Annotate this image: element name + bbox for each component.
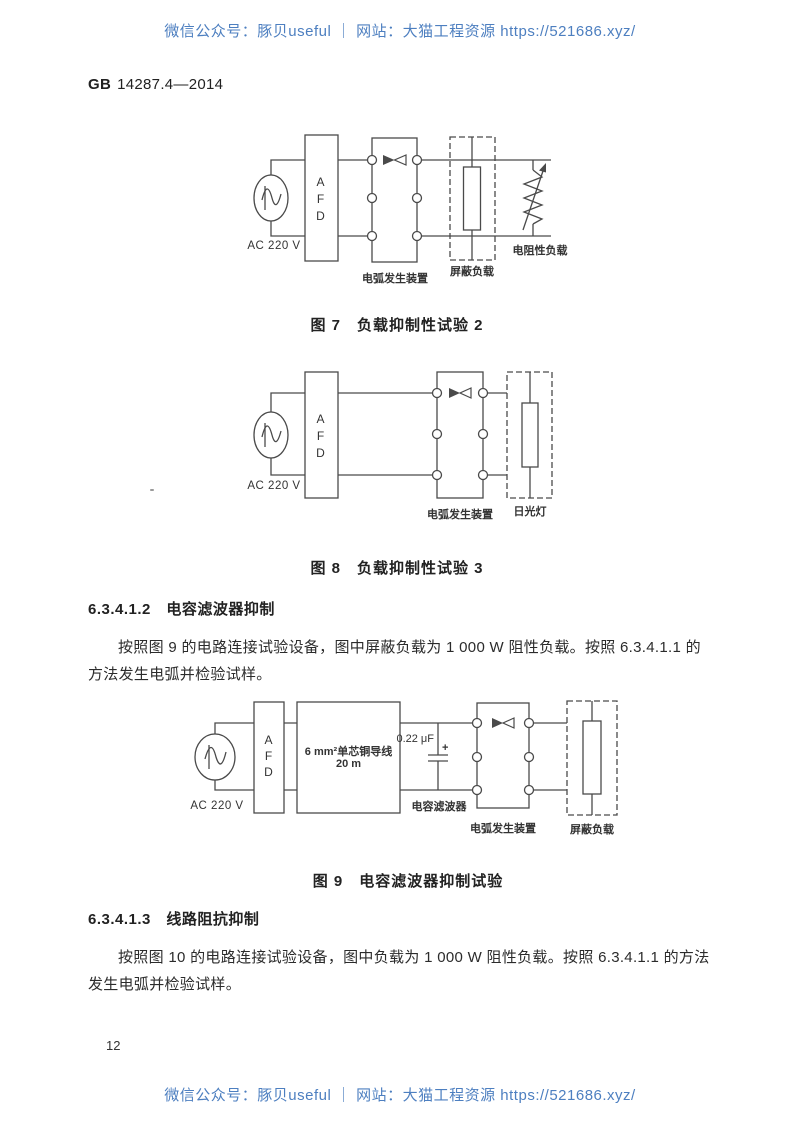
section-heading-6-3-4-1-3: 6.3.4.1.3 线路阻抗抑制 <box>88 908 259 929</box>
fig9-wire-box-line1: 6 mm²单芯铜导线 <box>297 743 400 759</box>
fig9-afd-d: D <box>254 765 284 779</box>
fig7-source-label: AC 220 V <box>242 240 306 252</box>
figure-7-diagram: AC 220 V A F D 电弧发生装置 屏蔽负载 电阻性负载 <box>240 120 580 298</box>
page-number: 12 <box>106 1038 120 1053</box>
fig9-shield-load-label: 屏蔽负载 <box>557 821 627 837</box>
arc-generator-icon <box>368 138 422 262</box>
fig9-capacitor-value: 0.22 μF <box>376 733 434 745</box>
fig9-capacitor-polarity: + <box>442 742 448 754</box>
ac-source-icon <box>254 175 288 221</box>
bottom-watermark: 微信公众号：豚贝useful ｜ 网站：大猫工程资源 https://52168… <box>0 1084 800 1105</box>
figure-7-caption: 图 7 负载抑制性试验 2 <box>0 314 797 335</box>
fig7-afd-a: A <box>306 175 336 189</box>
fig8-afd-f: F <box>306 429 336 443</box>
figure-9-diagram: AC 220 V A F D 6 mm²单芯铜导线 20 m 0.22 μF +… <box>180 680 640 840</box>
figure-8-circuit <box>240 360 580 525</box>
fig7-arc-device-label: 电弧发生装置 <box>345 270 445 286</box>
fig7-shield-load-label: 屏蔽负载 <box>437 263 507 279</box>
standard-number: GB14287.4—2014 <box>88 76 223 93</box>
fig8-afd-a: A <box>306 412 336 426</box>
fig8-lamp-label: 日光灯 <box>495 503 565 519</box>
document-page: 微信公众号：豚贝useful ｜ 网站：大猫工程资源 https://52168… <box>0 0 800 1130</box>
fig9-arc-device-label: 电弧发生装置 <box>453 820 553 836</box>
fluorescent-lamp-icon <box>507 372 552 498</box>
top-watermark: 微信公众号：豚贝useful ｜ 网站：大猫工程资源 https://52168… <box>0 20 800 41</box>
ac-source-icon <box>195 734 235 780</box>
figure-9-circuit <box>180 680 640 840</box>
scan-artifact-dot <box>150 489 154 491</box>
section-heading-6-3-4-1-2: 6.3.4.1.2 电容滤波器抑制 <box>88 598 275 619</box>
standard-prefix: GB <box>88 76 111 93</box>
fig7-afd-d: D <box>306 209 336 223</box>
standard-code: 14287.4—2014 <box>117 76 223 93</box>
variable-resistor-icon <box>523 160 546 236</box>
shield-load-icon <box>567 701 617 815</box>
fig9-afd-a: A <box>254 733 284 747</box>
fig9-wire-box-line2: 20 m <box>297 758 400 770</box>
ac-source-icon <box>254 412 288 458</box>
figure-8-diagram: AC 220 V A F D 电弧发生装置 日光灯 <box>240 360 580 525</box>
fig8-source-label: AC 220 V <box>242 480 306 492</box>
figure-8-caption: 图 8 负载抑制性试验 3 <box>0 557 797 578</box>
fig9-filter-label: 电容滤波器 <box>394 798 484 814</box>
fig7-afd-f: F <box>306 192 336 206</box>
shield-load-icon <box>450 137 495 260</box>
section-body-6-3-4-1-3: 按照图 10 的电路连接试验设备，图中负载为 1 000 W 阻性负载。按照 6… <box>88 944 716 998</box>
fig9-source-label: AC 220 V <box>185 800 249 812</box>
fig9-afd-f: F <box>254 749 284 763</box>
fig8-afd-d: D <box>306 446 336 460</box>
fig7-resistive-load-label: 电阻性负载 <box>500 242 580 258</box>
arc-generator-icon <box>433 372 488 498</box>
arc-generator-icon <box>473 703 534 808</box>
figure-9-caption: 图 9 电容滤波器抑制试验 <box>8 870 800 891</box>
